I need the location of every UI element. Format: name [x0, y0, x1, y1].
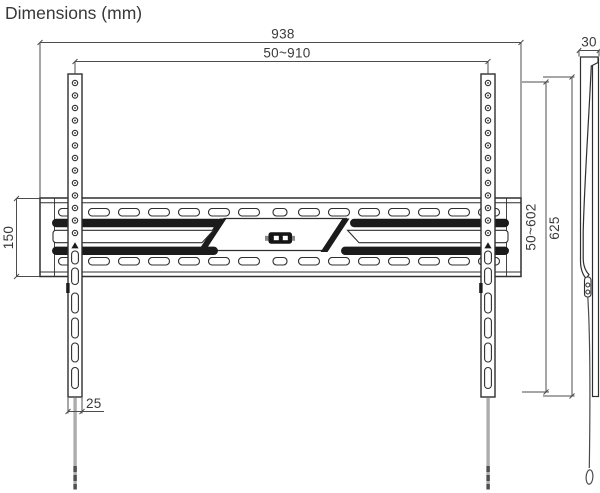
side-strap-loop	[586, 470, 594, 485]
right-rail	[479, 74, 495, 397]
dim-plate-height-label: 150	[1, 226, 16, 249]
dim-vertical-range-label: 50~602	[524, 203, 539, 250]
lock-tab	[66, 283, 69, 293]
dim-plate-height	[14, 196, 40, 279]
dim-rail-width-label: 25	[86, 396, 102, 411]
lock-tab	[479, 283, 482, 293]
dim-overall-width	[38, 40, 524, 198]
dim-depth-label: 30	[581, 35, 597, 50]
dim-rail-height-label: 625	[547, 216, 562, 239]
diagram-title: Dimensions (mm)	[5, 3, 142, 23]
dim-horizontal-range-label: 50~910	[263, 46, 310, 61]
right-strap	[486, 398, 489, 490]
side-channel	[593, 58, 599, 397]
side-strap	[588, 297, 590, 468]
dim-horizontal-range	[73, 59, 491, 74]
bubble-level	[265, 232, 295, 243]
drawing-canvas: Dimensions (mm)	[0, 0, 600, 493]
front-view	[40, 74, 521, 490]
dimension-drawing: Dimensions (mm)	[0, 0, 600, 493]
left-rail	[66, 74, 82, 397]
dim-overall-width-label: 938	[271, 27, 294, 42]
side-view	[581, 57, 599, 484]
